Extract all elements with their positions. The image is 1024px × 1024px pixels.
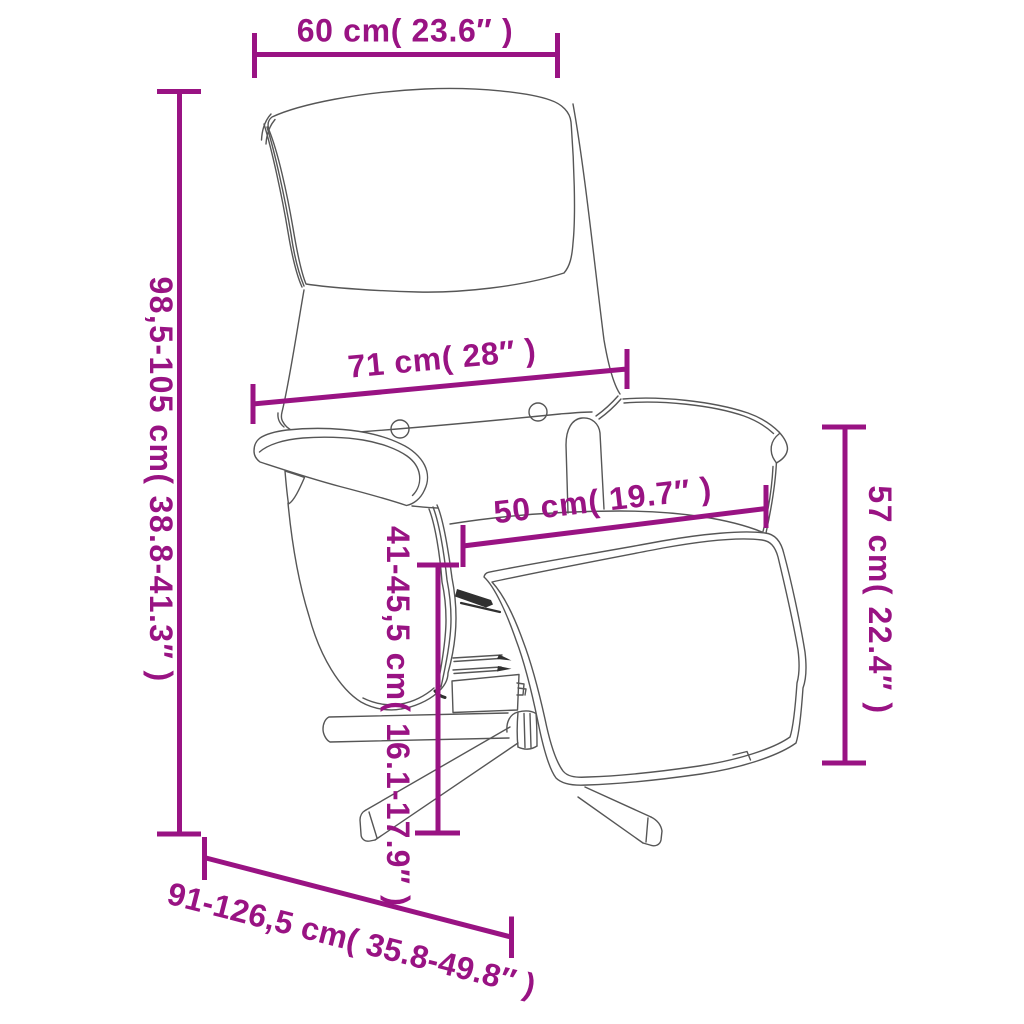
svg-text:57 cm( 22.4″ ): 57 cm( 22.4″ ): [862, 485, 898, 714]
svg-text:41-45,5 cm( 16.1-17.9″ ): 41-45,5 cm( 16.1-17.9″ ): [380, 526, 416, 907]
svg-text:98,5-105 cm( 38.8-41.3″ ): 98,5-105 cm( 38.8-41.3″ ): [143, 276, 179, 682]
svg-text:60 cm( 23.6″ ): 60 cm( 23.6″ ): [297, 13, 514, 49]
